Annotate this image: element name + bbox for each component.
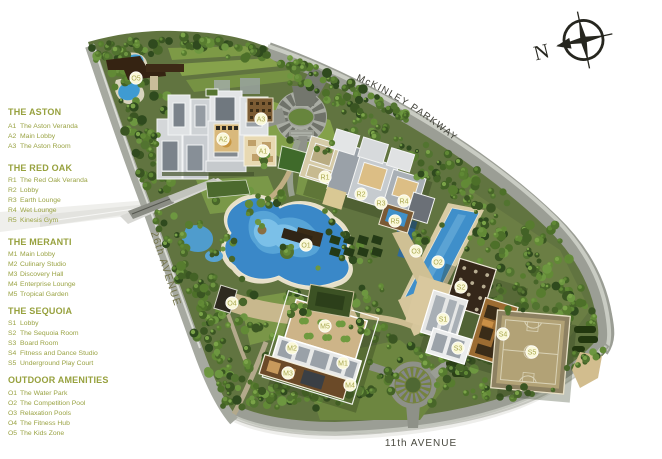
svg-text:S4: S4 xyxy=(499,331,508,338)
svg-text:R4: R4 xyxy=(400,198,409,205)
svg-text:11th AVENUE: 11th AVENUE xyxy=(385,438,457,449)
svg-text:O2: O2 xyxy=(433,259,442,266)
svg-text:R3: R3 xyxy=(377,200,386,207)
svg-text:A1: A1 xyxy=(259,148,268,155)
svg-text:R1: R1 xyxy=(321,174,330,181)
svg-text:S5: S5 xyxy=(528,349,537,356)
svg-text:R5: R5 xyxy=(391,218,400,225)
svg-text:A3: A3 xyxy=(257,116,266,123)
svg-text:M4: M4 xyxy=(345,382,355,389)
svg-text:N: N xyxy=(531,38,552,65)
svg-text:R2: R2 xyxy=(357,191,366,198)
svg-text:O1: O1 xyxy=(301,242,310,249)
svg-text:S3: S3 xyxy=(454,345,463,352)
svg-text:M2: M2 xyxy=(287,345,297,352)
svg-text:M1: M1 xyxy=(338,360,348,367)
svg-text:M5: M5 xyxy=(320,323,330,330)
svg-text:O4: O4 xyxy=(227,300,236,307)
svg-text:O3: O3 xyxy=(411,248,420,255)
svg-text:S1: S1 xyxy=(439,316,448,323)
svg-text:S2: S2 xyxy=(457,284,466,291)
svg-text:M3: M3 xyxy=(283,370,293,377)
svg-text:A2: A2 xyxy=(219,136,228,143)
